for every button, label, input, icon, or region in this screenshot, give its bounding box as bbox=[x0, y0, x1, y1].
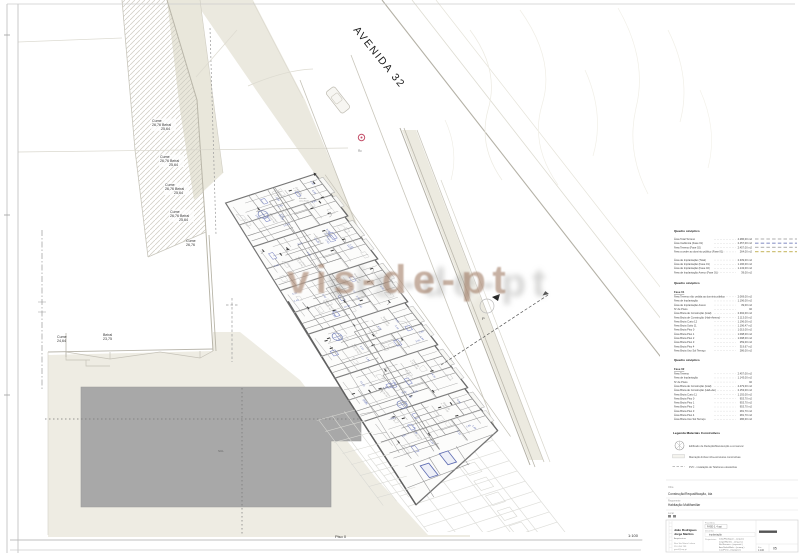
svg-text:Área Bruta Curto 11: Área Bruta Curto 11 bbox=[674, 392, 697, 396]
svg-text:Edificado de Redução/Manutençã: Edificado de Redução/Manutenção a conser… bbox=[689, 444, 744, 448]
svg-text:26,76: 26,76 bbox=[186, 243, 195, 247]
svg-text:Área Terreno: Área Terreno bbox=[674, 372, 690, 376]
svg-text:Fase 01: Fase 01 bbox=[674, 290, 685, 294]
svg-text:Projectistas: Projectistas bbox=[705, 538, 717, 541]
svg-text:05: 05 bbox=[773, 547, 777, 551]
svg-text:1.192,00 m2: 1.192,00 m2 bbox=[738, 392, 753, 396]
svg-text:Área de Implantação (Fase 01): Área de Implantação (Fase 01) bbox=[674, 262, 710, 266]
svg-text:Quadro sinóptico: Quadro sinóptico bbox=[674, 229, 700, 233]
svg-text:Área de Implantação (Total): Área de Implantação (Total) bbox=[674, 258, 706, 262]
svg-text:Área Bruta Piso 2: Área Bruta Piso 2 bbox=[674, 405, 695, 409]
svg-text:1.015,00 m2: 1.015,00 m2 bbox=[738, 328, 753, 332]
svg-text:2.339,00 m2: 2.339,00 m2 bbox=[738, 258, 753, 262]
svg-text:Arquitectura: Arquitectura bbox=[674, 537, 687, 540]
svg-text:2.153,00 m2: 2.153,00 m2 bbox=[738, 388, 753, 392]
svg-text:Fase/obra: Fase/obra bbox=[705, 522, 716, 525]
svg-text:Nº de Pisos: Nº de Pisos bbox=[674, 380, 688, 384]
svg-text:953,70 m2: 953,70 m2 bbox=[740, 401, 753, 405]
svg-text:Nº de Pisos: Nº de Pisos bbox=[674, 307, 688, 311]
svg-text:implantação: implantação bbox=[709, 534, 723, 537]
svg-text:39,00 m2: 39,00 m2 bbox=[741, 303, 752, 307]
svg-text:Desenho: Desenho bbox=[705, 531, 715, 533]
svg-text:Área Bruta Piso 4: Área Bruta Piso 4 bbox=[674, 344, 695, 348]
svg-text:FASE 0, 4 apt: FASE 0, 4 apt bbox=[707, 526, 722, 529]
svg-text:Área a ceder ao domínio públic: Área a ceder ao domínio público (Fase 01… bbox=[674, 250, 723, 254]
svg-text:Área Cedência (Fase 01): Área Cedência (Fase 01) bbox=[674, 241, 703, 245]
svg-text:SUL: SUL bbox=[218, 449, 224, 453]
svg-text:Área de Implantação (Fase 02): Área de Implantação (Fase 02) bbox=[674, 266, 710, 270]
svg-text:2.113,00 m2: 2.113,00 m2 bbox=[738, 315, 753, 319]
svg-text:PVC - instalação de Telefones: PVC - instalação de Telefones elevatória… bbox=[689, 465, 738, 469]
svg-text:Área Bruta Uso Sol Terraço: Área Bruta Uso Sol Terraço bbox=[674, 417, 706, 421]
svg-text:Área Terreno não cedida ao dom: Área Terreno não cedida ao domínio públi… bbox=[674, 295, 725, 299]
svg-text:Fase 02: Fase 02 bbox=[674, 367, 685, 371]
svg-text:1.143,00 m2: 1.143,00 m2 bbox=[738, 266, 753, 270]
svg-text:Jorge Martins: Jorge Martins bbox=[674, 532, 694, 536]
svg-text:Entrada: Entrada bbox=[299, 197, 307, 200]
svg-text:Habitação Multifamiliar: Habitação Multifamiliar bbox=[668, 503, 701, 507]
svg-text:953,70 m2: 953,70 m2 bbox=[740, 396, 753, 400]
svg-text:1.196,47 m2: 1.196,47 m2 bbox=[738, 324, 753, 328]
svg-text:25,64: 25,64 bbox=[179, 218, 188, 222]
svg-text:Construção/Requalificação, lda: Construção/Requalificação, lda bbox=[668, 492, 712, 496]
svg-text:2.457,00 m2: 2.457,00 m2 bbox=[738, 241, 753, 245]
svg-text:286,00 m2: 286,00 m2 bbox=[740, 348, 753, 352]
svg-text:25,64: 25,64 bbox=[169, 163, 178, 167]
svg-text:Área Bruta de Construção (Hab+: Área Bruta de Construção (Hab+Anexo) bbox=[674, 315, 720, 319]
svg-text:259,00 m2: 259,00 m2 bbox=[740, 340, 753, 344]
svg-text:210 456 789: 210 456 789 bbox=[674, 546, 687, 548]
svg-text:Área Bruta Piso 3: Área Bruta Piso 3 bbox=[674, 340, 695, 344]
svg-text:25,64: 25,64 bbox=[174, 191, 183, 195]
svg-text:Área Terreno (Fase 02): Área Terreno (Fase 02) bbox=[674, 245, 701, 249]
svg-text:Rc: Rc bbox=[358, 149, 362, 153]
svg-text:286,00 m2: 286,00 m2 bbox=[740, 417, 753, 421]
svg-text:Área Bruta Piso 2: Área Bruta Piso 2 bbox=[674, 336, 695, 340]
svg-text:Área de Implantação Anexo: Área de Implantação Anexo bbox=[674, 303, 706, 307]
svg-text:39,00 m2: 39,00 m2 bbox=[741, 270, 752, 274]
svg-text:Rua Sta Maria Lisboa: Rua Sta Maria Lisboa bbox=[674, 542, 696, 545]
svg-text:Área Bruta de Construção (tota: Área Bruta de Construção (total) bbox=[674, 311, 711, 315]
svg-text:319,67 m2: 319,67 m2 bbox=[740, 344, 753, 348]
svg-text:1:100: 1:100 bbox=[628, 533, 639, 538]
svg-text:geral@arq.pt: geral@arq.pt bbox=[674, 548, 687, 551]
svg-text:953,70 m2: 953,70 m2 bbox=[740, 405, 753, 409]
svg-text:2.457,00 m2: 2.457,00 m2 bbox=[738, 245, 753, 249]
svg-text:Área Bruta de Construção (Hab+: Área Bruta de Construção (Hab+An) bbox=[674, 388, 716, 392]
svg-text:1:100: 1:100 bbox=[758, 549, 765, 552]
svg-text:Área Bruta Curto 12: Área Bruta Curto 12 bbox=[674, 319, 698, 323]
svg-text:Área Bruta Piso 0: Área Bruta Piso 0 bbox=[674, 328, 695, 332]
svg-text:Área Total Terreno: Área Total Terreno bbox=[674, 237, 696, 241]
svg-text:Obra: Obra bbox=[668, 486, 674, 489]
svg-text:cota 25,10: cota 25,10 bbox=[299, 200, 310, 203]
svg-text:Área Bruta Piso 3: Área Bruta Piso 3 bbox=[674, 409, 695, 413]
svg-text:Área Bruta Uso Sol Terraço: Área Bruta Uso Sol Terraço bbox=[674, 348, 706, 352]
svg-text:281,70 m2: 281,70 m2 bbox=[740, 413, 753, 417]
svg-text:Área de Implantação: Área de Implantação bbox=[674, 376, 698, 380]
svg-text:Área Bruta Piso 0: Área Bruta Piso 0 bbox=[674, 396, 695, 400]
svg-text:Área Bruta Piso 4: Área Bruta Piso 4 bbox=[674, 413, 695, 417]
svg-text:P: P bbox=[482, 316, 485, 321]
svg-text:Área Bruta Piso 1: Área Bruta Piso 1 bbox=[674, 332, 695, 336]
svg-text:1.196,00 m2: 1.196,00 m2 bbox=[738, 262, 753, 266]
svg-text:25,64: 25,64 bbox=[161, 127, 170, 131]
svg-text:1.143,00 m2: 1.143,00 m2 bbox=[738, 376, 753, 380]
svg-text:vis-de-pt: vis-de-pt bbox=[287, 258, 512, 302]
svg-text:Área Bruta Piso 1: Área Bruta Piso 1 bbox=[674, 401, 695, 405]
svg-text:Quadro sinóptico: Quadro sinóptico bbox=[674, 358, 700, 362]
svg-text:4.286,00 m2: 4.286,00 m2 bbox=[738, 237, 753, 241]
svg-text:Área Bruta Sotto 11: Área Bruta Sotto 11 bbox=[674, 324, 697, 328]
svg-text:264,00 m2: 264,00 m2 bbox=[740, 250, 753, 254]
svg-text:1.196,00 m2: 1.196,00 m2 bbox=[738, 299, 753, 303]
svg-text:Local: Local bbox=[668, 512, 674, 515]
svg-text:1.098,00 m2: 1.098,00 m2 bbox=[738, 332, 753, 336]
svg-text:Ana/Sofia/Melo - (acomp.): Ana/Sofia/Melo - (acomp.) bbox=[719, 546, 745, 549]
svg-text:João/Rodrigues - (arquit.): João/Rodrigues - (arquit.) bbox=[719, 538, 744, 541]
svg-text:4.479,00 m2: 4.479,00 m2 bbox=[738, 384, 753, 388]
svg-text:2.069,00 m2: 2.069,00 m2 bbox=[738, 295, 753, 299]
svg-text:24,64: 24,64 bbox=[57, 339, 66, 343]
svg-text:Piso 0: Piso 0 bbox=[335, 534, 347, 539]
svg-text:Área de Implantação: Área de Implantação bbox=[674, 299, 698, 303]
svg-text:2.457,00 m2: 2.457,00 m2 bbox=[738, 372, 753, 376]
svg-text:Quadro sinóptico: Quadro sinóptico bbox=[674, 281, 700, 285]
svg-text:Área de Implantação Anexo (Fas: Área de Implantação Anexo (Fase 01) bbox=[674, 270, 718, 274]
svg-text:1.098,00 m2: 1.098,00 m2 bbox=[738, 336, 753, 340]
svg-text:Área Bruta de Construção (tota: Área Bruta de Construção (total) bbox=[674, 384, 711, 388]
svg-text:Legenda Materiais Construtivos: Legenda Materiais Construtivos bbox=[673, 431, 720, 435]
svg-text:1.196,00 m2: 1.196,00 m2 bbox=[738, 319, 753, 323]
svg-text:Jorge/Martins - (eng.civ): Jorge/Martins - (eng.civ) bbox=[719, 540, 743, 543]
svg-text:Marcação linhas infra-estrutur: Marcação linhas infra-estruturas constru… bbox=[689, 455, 741, 459]
svg-text:Luis/Pinto - (topograf.): Luis/Pinto - (topograf.) bbox=[719, 549, 741, 552]
svg-text:Rui/Ferreira - (especial.): Rui/Ferreira - (especial.) bbox=[719, 543, 743, 546]
svg-text:281,70 m2: 281,70 m2 bbox=[740, 409, 753, 413]
svg-text:23,75: 23,75 bbox=[103, 337, 112, 341]
svg-text:2.392,00 m2: 2.392,00 m2 bbox=[738, 311, 753, 315]
